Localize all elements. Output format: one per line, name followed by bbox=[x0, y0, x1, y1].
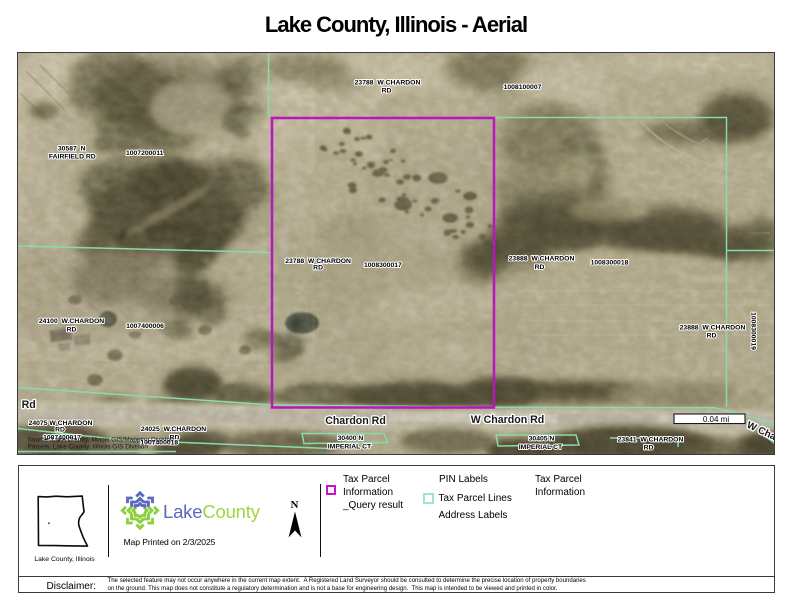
svg-text:1007200011: 1007200011 bbox=[126, 150, 164, 157]
svg-text:RD: RD bbox=[382, 88, 392, 95]
svg-text:IMPERIAL CT: IMPERIAL CT bbox=[328, 444, 372, 451]
svg-text:24025 W.CHARDON: 24025 W.CHARDON bbox=[141, 426, 206, 433]
svg-text:FAIRFIELD RD: FAIRFIELD RD bbox=[49, 154, 96, 161]
svg-text:Rd: Rd bbox=[22, 399, 36, 411]
svg-text:1008100007: 1008100007 bbox=[504, 84, 542, 91]
svg-text:30587 N: 30587 N bbox=[58, 145, 86, 152]
svg-text:23788 W CHARDON: 23788 W CHARDON bbox=[355, 80, 421, 87]
svg-text:0.04 mi: 0.04 mi bbox=[703, 415, 729, 424]
svg-text:RD: RD bbox=[67, 327, 77, 334]
svg-text:Chardon Rd: Chardon Rd bbox=[325, 415, 386, 427]
svg-text:30400 N: 30400 N bbox=[338, 435, 364, 442]
svg-text:RD: RD bbox=[707, 333, 717, 340]
svg-text:IMPERIAL CT: IMPERIAL CT bbox=[519, 444, 563, 451]
svg-text:RD: RD bbox=[644, 445, 654, 452]
svg-text:23841 W CHARDON: 23841 W CHARDON bbox=[618, 437, 684, 444]
svg-text:RD: RD bbox=[55, 427, 65, 434]
svg-text:1008300017: 1008300017 bbox=[364, 262, 402, 269]
svg-text:30405 N: 30405 N bbox=[529, 436, 555, 443]
svg-text:23888 W CHARDON: 23888 W CHARDON bbox=[680, 325, 746, 332]
svg-text:23888 W CHARDON: 23888 W CHARDON bbox=[509, 256, 575, 263]
svg-text:1008300019: 1008300019 bbox=[750, 312, 757, 350]
svg-text:W Chardon Rd: W Chardon Rd bbox=[471, 414, 545, 426]
svg-text:RD: RD bbox=[313, 265, 323, 272]
svg-text:RD: RD bbox=[535, 264, 545, 271]
svg-text:1007400006: 1007400006 bbox=[126, 323, 164, 330]
svg-text:Parcels: Lake County, Illinois: Parcels: Lake County, Illinois GIS Divis… bbox=[28, 443, 149, 450]
svg-text:1008300018: 1008300018 bbox=[591, 260, 629, 267]
svg-text:24100 W.CHARDON: 24100 W.CHARDON bbox=[39, 318, 104, 325]
